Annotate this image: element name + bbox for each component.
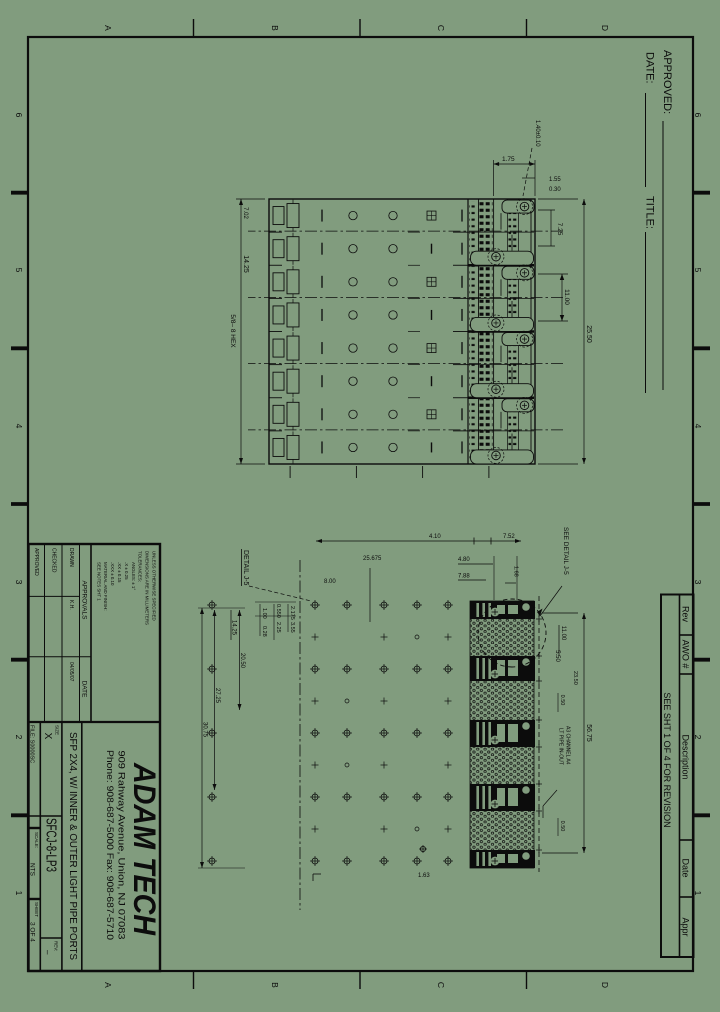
svg-text:30.75: 30.75 [202,722,208,738]
svg-text:20.50: 20.50 [239,653,245,669]
svg-text:UNLESS OTHERWISE SPECIFIED: UNLESS OTHERWISE SPECIFIED [152,551,157,621]
svg-text:8.00: 8.00 [324,579,336,585]
svg-text:1.40±0.10: 1.40±0.10 [534,120,540,147]
svg-text:LT PIPE IN-OUT: LT PIPE IN-OUT [558,728,564,765]
svg-text:SFP 2X4, W/ INNER & OUTER LIGH: SFP 2X4, W/ INNER & OUTER LIGHT PIPE POR… [67,732,78,960]
svg-text:4.10: 4.10 [429,534,441,540]
svg-text:Phone: 908-687-5000 Fax: 908-6: Phone: 908-687-5000 Fax: 908-687-5710 [104,750,115,940]
svg-text:DATE:: DATE: [644,52,656,84]
svg-text:D: D [600,982,610,988]
svg-text:25.50: 25.50 [585,325,592,343]
svg-text:DRAWN: DRAWN [68,548,74,567]
svg-text:.X ± 0.25: .X ± 0.25 [124,562,129,580]
svg-text:SCALE:: SCALE: [34,832,39,848]
svg-text:25.675: 25.675 [363,556,382,562]
svg-text:DATE: DATE [81,681,88,699]
svg-text:Date: Date [681,858,691,877]
svg-text:11.00: 11.00 [563,289,570,305]
svg-text:7.25: 7.25 [556,223,563,236]
svg-text:SEE DETAIL J-5: SEE DETAIL J-5 [562,527,569,575]
svg-text:SEE SHT 1 OF 4 FOR REVISION: SEE SHT 1 OF 4 FOR REVISION [662,692,672,827]
svg-text:3: 3 [693,580,703,585]
svg-text:1: 1 [14,891,24,896]
svg-text:APPROVED:: APPROVED: [661,50,673,114]
svg-text:0.30: 0.30 [549,187,561,193]
svg-text:7.88: 7.88 [458,574,470,580]
svg-text:4.80: 4.80 [458,557,470,563]
svg-text:C: C [436,982,446,988]
svg-text:14.25: 14.25 [242,255,249,273]
svg-text:NTS: NTS [29,863,36,877]
svg-text:SHEET: SHEET [34,902,39,917]
svg-text:0.50: 0.50 [559,821,565,832]
svg-text:1.00: 1.00 [261,608,267,619]
svg-text:A3 CHANNEL A4: A3 CHANNEL A4 [565,726,571,765]
svg-text:.XXX ± 0.10: .XXX ± 0.10 [110,562,115,586]
svg-text:56.75: 56.75 [585,724,592,742]
svg-text:27.25: 27.25 [214,688,220,704]
svg-text:909 Rahway Avenue, Union, NJ 0: 909 Rahway Avenue, Union, NJ 07083 [116,751,127,940]
svg-text:6: 6 [693,113,703,118]
svg-text:4: 4 [693,424,703,429]
svg-text:5: 5 [14,268,24,273]
svg-text:1.68: 1.68 [513,566,519,577]
svg-text:5/8– 8 HEX: 5/8– 8 HEX [229,314,236,348]
svg-text:REV:: REV: [54,941,59,951]
svg-text:0.28: 0.28 [261,626,267,637]
svg-text:2.175: 2.175 [289,606,295,620]
svg-text:5: 5 [693,268,703,273]
svg-text:1.63: 1.63 [418,873,430,879]
svg-text:2: 2 [14,735,24,740]
svg-text:–: – [43,950,52,955]
svg-text:DETAIL J-5: DETAIL J-5 [242,550,249,586]
svg-text:2.25: 2.25 [275,622,281,633]
svg-text:6: 6 [14,113,24,118]
svg-text:3 OF 4: 3 OF 4 [29,922,36,942]
svg-text:11.00: 11.00 [560,626,566,641]
svg-text:Appr: Appr [681,917,691,936]
svg-text:TOLERANCES:: TOLERANCES: [138,551,143,582]
svg-text:A: A [103,982,113,988]
svg-text:SEE NOTES SHT 1: SEE NOTES SHT 1 [96,562,101,601]
svg-text:K.H.: K.H. [68,600,74,610]
svg-text:1.75: 1.75 [502,156,515,163]
svg-text:AWO #: AWO # [681,640,691,669]
svg-text:0.50: 0.50 [559,695,565,706]
svg-text:Rev: Rev [681,606,691,623]
svg-text:D: D [600,25,610,31]
svg-text:SIZE: SIZE [55,725,60,735]
svg-text:23.50: 23.50 [572,671,578,685]
svg-text:C: C [436,25,446,31]
svg-text:DIMENSIONS ARE IN MILLIMETERS: DIMENSIONS ARE IN MILLIMETERS [145,551,150,625]
svg-text:X: X [42,733,53,740]
svg-text:14.25: 14.25 [231,620,237,636]
svg-text:CHECKED: CHECKED [51,548,57,573]
svg-text:1.55: 1.55 [549,177,561,183]
svg-text:3.55: 3.55 [289,622,295,633]
svg-text:.XX ± 0.15: .XX ± 0.15 [117,562,122,583]
svg-text:7.52: 7.52 [503,534,515,540]
svg-text:7.02: 7.02 [242,207,248,219]
svg-text:FILE: S0000SC: FILE: S0000SC [29,725,35,763]
svg-text:Description: Description [681,734,691,779]
svg-text:TITLE:: TITLE: [644,196,656,229]
svg-text:ADAM TECH: ADAM TECH [127,762,163,936]
svg-text:ANGLES: ± 1°: ANGLES: ± 1° [131,562,136,590]
svg-text:MATERIAL AND FINISH:: MATERIAL AND FINISH: [103,562,108,611]
svg-text:APPROVALS: APPROVALS [81,581,88,621]
svg-text:04/05/07: 04/05/07 [68,662,74,682]
svg-text:4: 4 [14,424,24,429]
svg-text:A: A [103,25,113,31]
svg-text:B: B [270,982,280,988]
svg-text:SFCJ-8-LP3: SFCJ-8-LP3 [43,818,59,872]
svg-text:APPROVED: APPROVED [33,548,39,576]
svg-text:3: 3 [14,580,24,585]
svg-text:B: B [270,25,280,31]
